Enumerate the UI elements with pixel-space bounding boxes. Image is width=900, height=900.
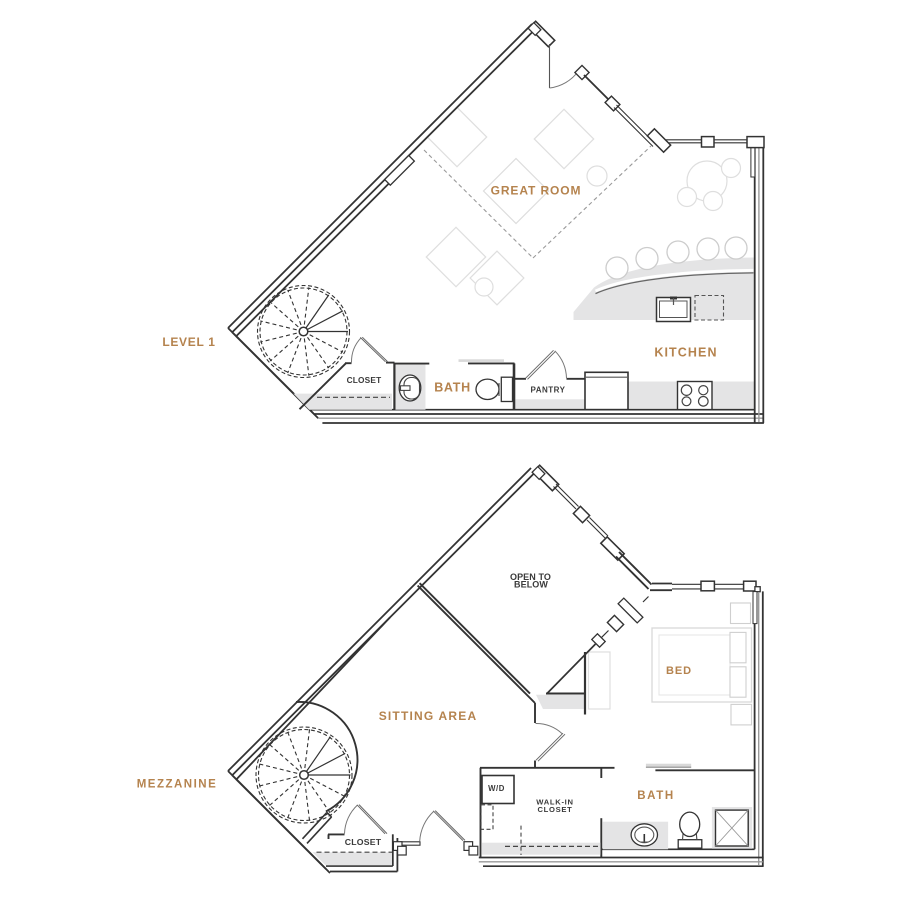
svg-text:BELOW: BELOW: [514, 580, 548, 590]
svg-text:KITCHEN: KITCHEN: [654, 346, 717, 360]
svg-text:BATH: BATH: [434, 380, 471, 394]
svg-text:MEZZANINE: MEZZANINE: [137, 779, 218, 791]
svg-text:BED: BED: [666, 665, 692, 677]
svg-text:SITTING AREA: SITTING AREA: [379, 709, 478, 723]
svg-text:GREAT ROOM: GREAT ROOM: [491, 183, 582, 197]
svg-text:W/D: W/D: [488, 784, 505, 793]
svg-text:LEVEL 1: LEVEL 1: [162, 335, 215, 349]
svg-text:BATH: BATH: [637, 790, 675, 802]
svg-text:PANTRY: PANTRY: [531, 386, 566, 395]
svg-text:CLOSET: CLOSET: [538, 805, 573, 814]
svg-text:CLOSET: CLOSET: [345, 837, 382, 847]
svg-text:CLOSET: CLOSET: [347, 375, 382, 385]
